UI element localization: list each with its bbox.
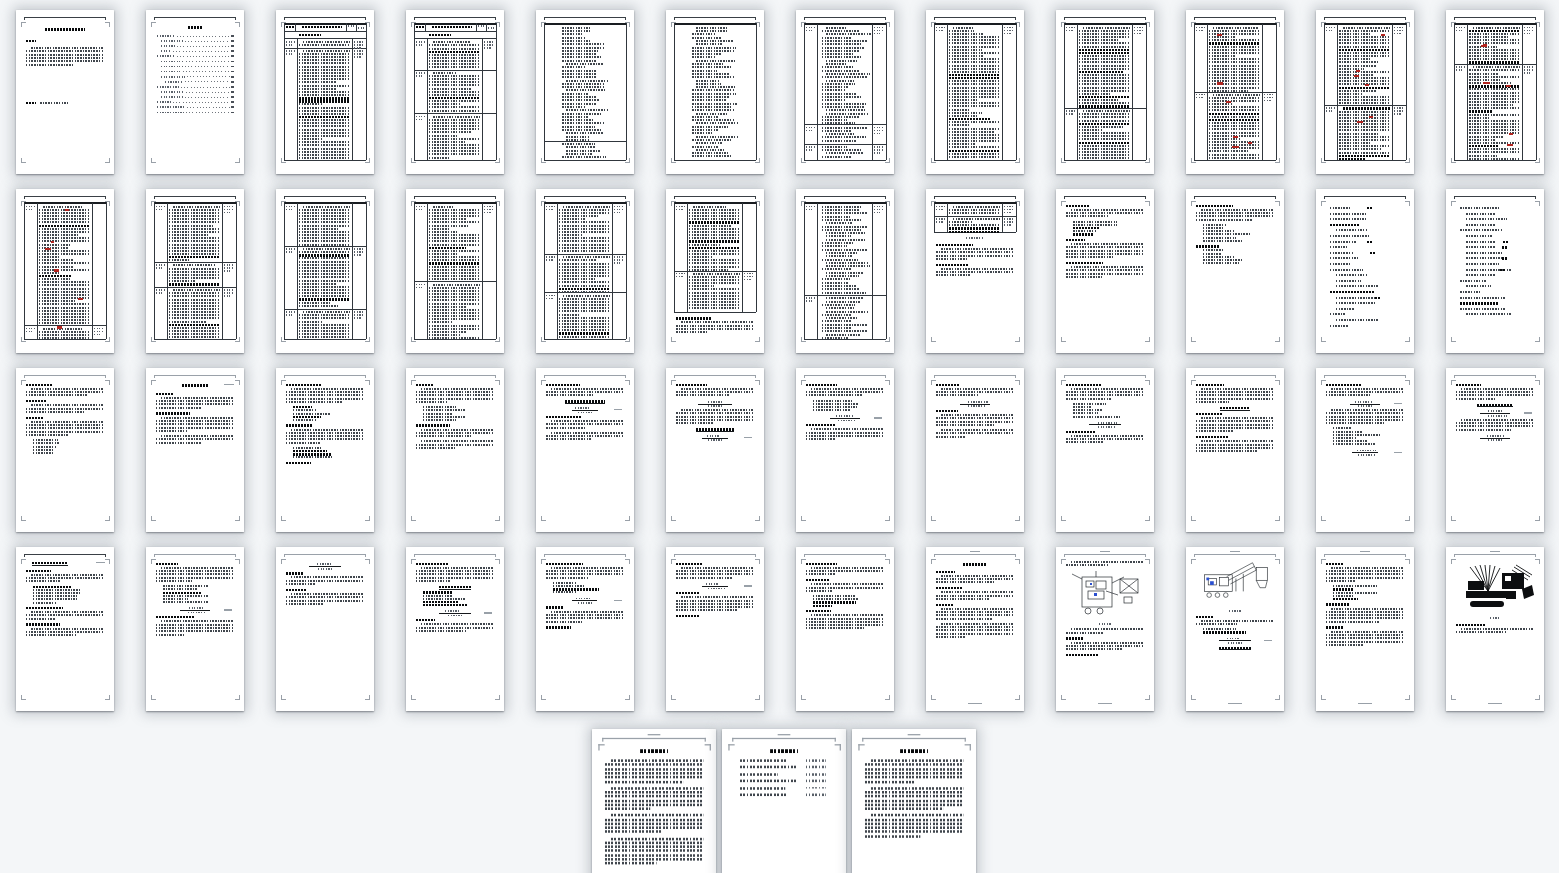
header-rule-hook xyxy=(934,375,935,378)
sim-table-cell-line xyxy=(299,244,350,246)
page-thumbnail-34[interactable] xyxy=(1186,368,1284,532)
page-thumbnail-40[interactable] xyxy=(406,547,504,711)
sim-formula-numerator xyxy=(1357,450,1376,452)
page-content xyxy=(1446,547,1544,711)
sim-row-label xyxy=(1326,110,1333,112)
sim-paragraph-line xyxy=(421,567,494,569)
sim-table-list-line xyxy=(692,96,730,98)
header-rule-hook xyxy=(1064,17,1065,20)
page-content xyxy=(796,10,894,174)
sim-table-list-line xyxy=(562,106,586,108)
sim-table-cell-line xyxy=(949,77,1000,79)
sim-table-cell-line xyxy=(429,135,457,137)
sim-toc-leader xyxy=(183,71,230,72)
sim-paragraph-line xyxy=(26,394,87,396)
sim-table-cell-line xyxy=(169,283,220,285)
sim-table-cell-line xyxy=(1079,138,1130,140)
sim-list-line xyxy=(1333,588,1353,590)
table-bottom-border xyxy=(1454,160,1537,161)
table-bottom-border xyxy=(544,160,627,161)
page-thumbnail-38[interactable] xyxy=(146,547,244,711)
crop-mark-icon xyxy=(1275,695,1280,700)
header-rule xyxy=(1454,554,1536,555)
crop-mark-icon xyxy=(1535,559,1540,564)
page-thumbnail-14[interactable] xyxy=(146,189,244,353)
sim-row-label xyxy=(1456,27,1465,29)
page-content xyxy=(1056,368,1154,532)
crop-mark-icon xyxy=(151,158,156,163)
sim-paragraph-line xyxy=(605,822,704,825)
sim-table-cell-line xyxy=(429,81,480,83)
crop-mark-icon xyxy=(21,695,26,700)
sim-table-cell-line xyxy=(1469,104,1513,106)
header-rule-hook xyxy=(284,196,285,199)
page-thumbnail-42[interactable] xyxy=(666,547,764,711)
sim-table-cell-line xyxy=(299,154,350,156)
sim-list-line xyxy=(1203,233,1250,235)
page-thumbnail-43[interactable] xyxy=(796,547,894,711)
header-rule-hook xyxy=(625,554,626,557)
sim-paragraph-line xyxy=(546,621,582,623)
sim-table-cell-line xyxy=(299,273,350,275)
page-thumbnail-37[interactable] xyxy=(16,547,114,711)
sim-paragraph-line xyxy=(1196,219,1253,221)
sim-table-cell-line xyxy=(1339,77,1390,79)
page-thumbnail-2[interactable] xyxy=(146,10,244,174)
sim-table-cell-line xyxy=(299,212,350,214)
page-thumbnail-3[interactable] xyxy=(276,10,374,174)
sim-formula-numerator xyxy=(968,401,987,403)
page-thumbnail-48[interactable] xyxy=(1446,547,1544,711)
sim-list-line xyxy=(1466,263,1499,265)
table-border-left xyxy=(1064,23,1065,160)
page-thumbnail-5[interactable] xyxy=(536,10,634,174)
crop-mark-icon xyxy=(671,337,676,342)
sim-heading-line xyxy=(1066,637,1083,639)
page-thumbnail-27[interactable] xyxy=(276,368,374,532)
sim-table-list-line xyxy=(822,30,859,32)
sim-table-cell-line xyxy=(559,314,581,316)
sim-table-list-line xyxy=(826,63,848,65)
sim-table-cell-line xyxy=(689,209,740,211)
sim-paragraph-line xyxy=(676,325,754,327)
page-thumbnail-10[interactable] xyxy=(1186,10,1284,174)
sim-table-cell-line xyxy=(429,253,458,255)
header-rule xyxy=(414,554,496,555)
header-rule-hook xyxy=(755,196,756,199)
sim-paragraph-line xyxy=(291,388,364,390)
sim-table-cell-line xyxy=(169,274,220,276)
sim-row-label xyxy=(806,27,815,29)
sim-table-cell-line xyxy=(1079,52,1130,54)
header-rule-hook xyxy=(495,375,496,378)
sim-table-cell-line xyxy=(1469,85,1520,87)
sim-paragraph-line xyxy=(681,388,754,390)
sim-table-cell-line xyxy=(1209,109,1260,111)
table-bottom-border xyxy=(804,160,887,161)
sim-side-cell xyxy=(1004,218,1014,220)
header-rule-hook xyxy=(1454,554,1455,557)
sim-heading-line xyxy=(936,384,960,386)
sim-table-cell-line xyxy=(949,128,1000,130)
sim-table-cell-line xyxy=(299,125,350,127)
sim-table-cell-line xyxy=(949,83,1000,85)
header-rule-hook xyxy=(24,375,25,378)
sim-table-cell-line xyxy=(1209,30,1260,32)
page-thumbnail-22[interactable] xyxy=(1186,189,1284,353)
sim-table-list-line xyxy=(696,80,720,82)
sim-list-line xyxy=(1460,280,1487,282)
page-thumbnail-33[interactable] xyxy=(1056,368,1154,532)
page-thumbnail-13[interactable] xyxy=(16,189,114,353)
sim-table-cell-line xyxy=(299,75,350,77)
page-thumbnail-12[interactable] xyxy=(1446,10,1544,174)
page-thumbnail-7[interactable] xyxy=(796,10,894,174)
sim-table-cell-line xyxy=(1209,97,1260,99)
sim-paragraph-line xyxy=(605,780,683,783)
sim-table-cell-line xyxy=(1339,155,1390,157)
sim-table-cell-line xyxy=(689,279,740,281)
sim-heading-line xyxy=(1066,384,1102,386)
sim-table-cell-line xyxy=(169,324,220,326)
page-thumbnail-50[interactable] xyxy=(722,729,846,873)
sim-table-list-line xyxy=(562,30,590,32)
page-thumbnail-16[interactable] xyxy=(406,189,504,353)
table-border-left xyxy=(544,23,545,160)
sim-page-number-footer xyxy=(1488,703,1502,704)
sim-table-cell-line xyxy=(169,209,220,211)
sim-list-ref xyxy=(806,766,826,768)
sim-toc-pagenumber xyxy=(231,86,234,88)
sim-paragraph-line xyxy=(26,634,77,636)
table-top-border xyxy=(414,202,497,204)
sim-table-cell-line xyxy=(39,240,90,242)
sim-table-list-line xyxy=(692,146,718,148)
header-rule-hook xyxy=(1064,196,1065,199)
sim-row-label xyxy=(546,259,553,261)
sim-table-cell-line xyxy=(1079,99,1118,101)
page-thumbnail-32[interactable] xyxy=(926,368,1024,532)
sim-table-cell-line xyxy=(1209,49,1260,51)
sim-running-header xyxy=(1100,551,1110,552)
sim-side-cell xyxy=(1394,33,1402,35)
sim-paragraph-line xyxy=(26,408,104,410)
page-thumbnail-26[interactable] xyxy=(146,368,244,532)
page-thumbnail-44[interactable] xyxy=(926,547,1024,711)
sim-row-label xyxy=(1326,107,1335,109)
sim-paragraph-line xyxy=(871,759,963,762)
sim-heading-line xyxy=(1326,563,1343,565)
sim-table-cell-line xyxy=(953,206,1000,208)
sim-list-line xyxy=(1466,224,1496,226)
sim-table-cell-line xyxy=(559,329,610,331)
sim-table-cell-line xyxy=(1339,152,1390,154)
sim-table-cell-line xyxy=(39,253,90,255)
sim-table-list-line xyxy=(696,142,723,144)
page-thumbnail-41[interactable] xyxy=(536,547,634,711)
sim-table-cell-line xyxy=(299,231,350,233)
page-thumbnail-45[interactable] xyxy=(1056,547,1154,711)
sim-list-line xyxy=(423,406,456,408)
sim-paragraph-line xyxy=(416,401,447,403)
sim-toc-leader xyxy=(187,76,230,77)
sim-table-list-line xyxy=(692,103,737,105)
header-rule xyxy=(414,375,496,376)
sim-table-cell-line xyxy=(559,304,610,306)
sim-list-line xyxy=(740,766,797,769)
page-thumbnail-15[interactable] xyxy=(276,189,374,353)
page-thumbnail-35[interactable] xyxy=(1316,368,1414,532)
sim-row-label xyxy=(936,209,943,211)
crop-mark-icon xyxy=(885,559,890,564)
sim-paragraph-line xyxy=(1196,424,1274,426)
page-content xyxy=(16,10,114,174)
page-thumbnail-47[interactable] xyxy=(1316,547,1414,711)
sim-table-cell-line xyxy=(563,295,610,297)
sim-side-cell xyxy=(354,53,363,55)
sim-paragraph-line xyxy=(551,388,624,390)
sim-formula-numerator xyxy=(836,415,854,417)
sim-table-cell-line xyxy=(689,240,740,242)
sim-table-cell-line xyxy=(429,100,480,102)
crop-mark-icon xyxy=(1405,201,1410,206)
page-thumbnail-30[interactable] xyxy=(666,368,764,532)
sim-row-label xyxy=(806,127,815,129)
page-thumbnail-46[interactable] xyxy=(1186,547,1284,711)
table-border-right xyxy=(1146,23,1147,160)
sim-list-line xyxy=(740,759,788,762)
sim-toc-leader xyxy=(173,51,230,52)
sim-table-list-line xyxy=(822,83,855,85)
crop-mark-icon xyxy=(1061,516,1066,521)
table-border-left xyxy=(284,202,285,339)
table-row-line xyxy=(544,141,627,142)
sim-table-cell-line xyxy=(559,247,610,249)
page-thumbnail-9[interactable] xyxy=(1056,10,1154,174)
page-thumbnail-6[interactable] xyxy=(666,10,764,174)
sim-table-cell-line xyxy=(1339,96,1390,98)
sim-table-cell-line xyxy=(559,336,610,338)
crop-mark-icon xyxy=(1275,380,1280,385)
sim-table-list-line xyxy=(692,50,734,52)
sim-row-label xyxy=(286,50,295,52)
sim-paragraph-line xyxy=(806,627,865,629)
crop-mark-icon xyxy=(625,380,630,385)
page-thumbnail-36[interactable] xyxy=(1446,368,1544,532)
sim-list-line xyxy=(1460,291,1482,293)
sim-paragraph-line xyxy=(1326,412,1404,414)
sim-list-line xyxy=(1466,218,1507,220)
sim-table-cell-line xyxy=(689,269,728,271)
sim-paragraph-line xyxy=(941,414,1014,416)
page-thumbnail-29[interactable] xyxy=(536,368,634,532)
sim-table-cell-line xyxy=(559,278,595,280)
sim-formula-denominator xyxy=(1098,426,1115,428)
sim-table-cell-line xyxy=(689,288,740,290)
sim-side-cell xyxy=(224,209,233,211)
sim-list-line xyxy=(813,605,832,607)
crop-mark-icon xyxy=(931,337,936,342)
sim-table-list-line xyxy=(826,317,858,319)
page-thumbnail-8[interactable] xyxy=(926,10,1024,174)
sim-row-label xyxy=(1066,27,1075,29)
page-thumbnail-31[interactable] xyxy=(796,368,894,532)
sim-table-cell-line xyxy=(299,292,350,294)
sim-table-list-line xyxy=(566,80,609,82)
sim-table-list-line xyxy=(692,139,732,141)
sim-table-list-line xyxy=(822,43,862,45)
sim-formula-numerator xyxy=(708,401,722,403)
sim-table-list-line xyxy=(826,73,870,75)
sim-list-line xyxy=(293,447,321,449)
header-rule xyxy=(1194,375,1276,376)
sim-table-list-line xyxy=(822,212,867,214)
header-rule xyxy=(1194,17,1276,18)
header-rule-hook xyxy=(1454,196,1455,199)
sim-table-cell-line xyxy=(39,316,90,318)
sim-row-label xyxy=(26,331,33,333)
sim-row-label xyxy=(1196,30,1203,32)
sim-paragraph-line xyxy=(1196,420,1274,422)
sim-table-cell-line xyxy=(429,150,480,152)
sim-toc-entry xyxy=(161,91,184,93)
header-rule-hook xyxy=(414,196,415,199)
sim-table-cell-line xyxy=(1209,90,1248,92)
sim-table-cell-line xyxy=(1209,87,1260,89)
sim-table-list-line xyxy=(562,73,596,75)
sim-paragraph-line xyxy=(1201,417,1274,419)
sim-table-cell-line xyxy=(559,244,610,246)
page-content xyxy=(796,189,894,353)
sim-paragraph-line xyxy=(936,595,1014,597)
sim-paragraph-line xyxy=(681,596,754,598)
sim-side-cell xyxy=(614,259,623,261)
page-thumbnail-24[interactable] xyxy=(1446,189,1544,353)
table-top-border xyxy=(804,23,887,25)
page-thumbnail-25[interactable] xyxy=(16,368,114,532)
page-thumbnail-20[interactable] xyxy=(926,189,1024,353)
sim-table-list-line xyxy=(562,60,596,62)
sim-paragraph-line xyxy=(551,611,624,613)
header-rule-hook xyxy=(1454,17,1455,20)
sim-table-cell-line xyxy=(299,218,350,220)
header-rule-hook xyxy=(365,196,366,199)
sim-row-label xyxy=(286,44,293,46)
sim-table-cell-line xyxy=(1339,117,1390,119)
table-top-border xyxy=(1454,23,1537,25)
sim-page-number-footer xyxy=(1358,703,1372,704)
table-border-right xyxy=(626,23,627,160)
sim-paragraph-line xyxy=(605,795,704,798)
sim-paragraph-line xyxy=(936,614,1014,616)
sim-row-label xyxy=(1456,66,1465,68)
sim-table-cell-line xyxy=(1469,39,1520,41)
sim-side-cell xyxy=(354,317,362,319)
sim-paragraph-line xyxy=(811,567,884,569)
table-bottom-border xyxy=(284,160,367,161)
sim-table-list-line xyxy=(692,106,733,108)
sim-revision-mark xyxy=(1381,34,1384,36)
sim-table-cell-line xyxy=(429,88,472,90)
sim-table-cell-line xyxy=(1339,58,1371,60)
sim-table-cell-line xyxy=(1469,145,1498,147)
sim-revision-mark xyxy=(1226,101,1231,103)
sim-side-cell xyxy=(1264,100,1272,102)
page-thumbnail-28[interactable] xyxy=(406,368,504,532)
sim-table-list-line xyxy=(696,30,727,32)
page-thumbnail-23[interactable] xyxy=(1316,189,1414,353)
page-thumbnail-17[interactable] xyxy=(536,189,634,353)
header-rule-hook xyxy=(1064,554,1065,557)
sim-table-cell-line xyxy=(689,247,740,249)
sim-table-cell-line xyxy=(429,147,480,149)
sim-paragraph-line xyxy=(156,634,184,636)
sim-toc-entry xyxy=(157,112,184,114)
page-thumbnail-19[interactable] xyxy=(796,189,894,353)
sim-table-list-line xyxy=(696,113,727,115)
page-thumbnail-21[interactable] xyxy=(1056,189,1154,353)
sim-table-list-line xyxy=(562,143,595,145)
page-thumbnail-18[interactable] xyxy=(666,189,764,353)
sim-table-cell-line xyxy=(169,314,220,316)
page-thumbnail-1[interactable] xyxy=(16,10,114,174)
crop-mark-icon xyxy=(1275,516,1280,521)
sim-revision-mark xyxy=(65,209,69,211)
sim-row-label xyxy=(156,206,165,208)
sim-toc-leader xyxy=(177,56,230,57)
sim-list-line xyxy=(293,416,321,418)
sim-paragraph-line xyxy=(1071,561,1144,563)
sim-table-cell-line xyxy=(1083,110,1130,112)
table-bottom-border xyxy=(934,160,1017,161)
page-thumbnail-49[interactable] xyxy=(592,729,716,873)
sim-table-list-line xyxy=(822,37,852,39)
sim-running-header xyxy=(908,733,921,735)
page-thumbnail-39[interactable] xyxy=(276,547,374,711)
sim-row-label xyxy=(1456,69,1463,71)
page-thumbnail-11[interactable] xyxy=(1316,10,1414,174)
sim-paragraph-line xyxy=(291,429,364,431)
sim-figure-caption xyxy=(1229,610,1241,612)
page-thumbnail-4[interactable] xyxy=(406,10,504,174)
page-content xyxy=(592,729,716,873)
sim-table-cell-line xyxy=(429,234,480,236)
sim-table-cell-line xyxy=(559,263,610,265)
sim-table-cell-line xyxy=(949,87,1000,89)
sim-row-label xyxy=(936,27,945,29)
machinery-diagram xyxy=(1066,569,1144,625)
sim-table-list-line xyxy=(562,53,596,55)
sim-row-label xyxy=(286,206,295,208)
crop-mark-icon xyxy=(105,380,110,385)
sim-side-cell xyxy=(614,209,623,211)
sim-table-list-line xyxy=(826,133,854,135)
table-column-line xyxy=(817,203,818,340)
crop-mark-icon xyxy=(1535,201,1540,206)
sim-paragraph-line xyxy=(26,391,104,393)
sim-list-line xyxy=(1333,431,1362,433)
sim-table-cell-line xyxy=(689,228,740,230)
page-thumbnail-51[interactable] xyxy=(852,729,976,873)
sim-side-cell xyxy=(354,41,364,43)
sim-paragraph-line xyxy=(416,432,494,434)
header-rule-hook xyxy=(934,196,935,199)
sim-formula-denominator xyxy=(318,568,334,570)
table-column-line xyxy=(352,203,353,340)
sim-table-cell-line xyxy=(559,326,610,328)
page-content xyxy=(1316,189,1414,353)
sim-table-cell-line xyxy=(949,80,1000,82)
